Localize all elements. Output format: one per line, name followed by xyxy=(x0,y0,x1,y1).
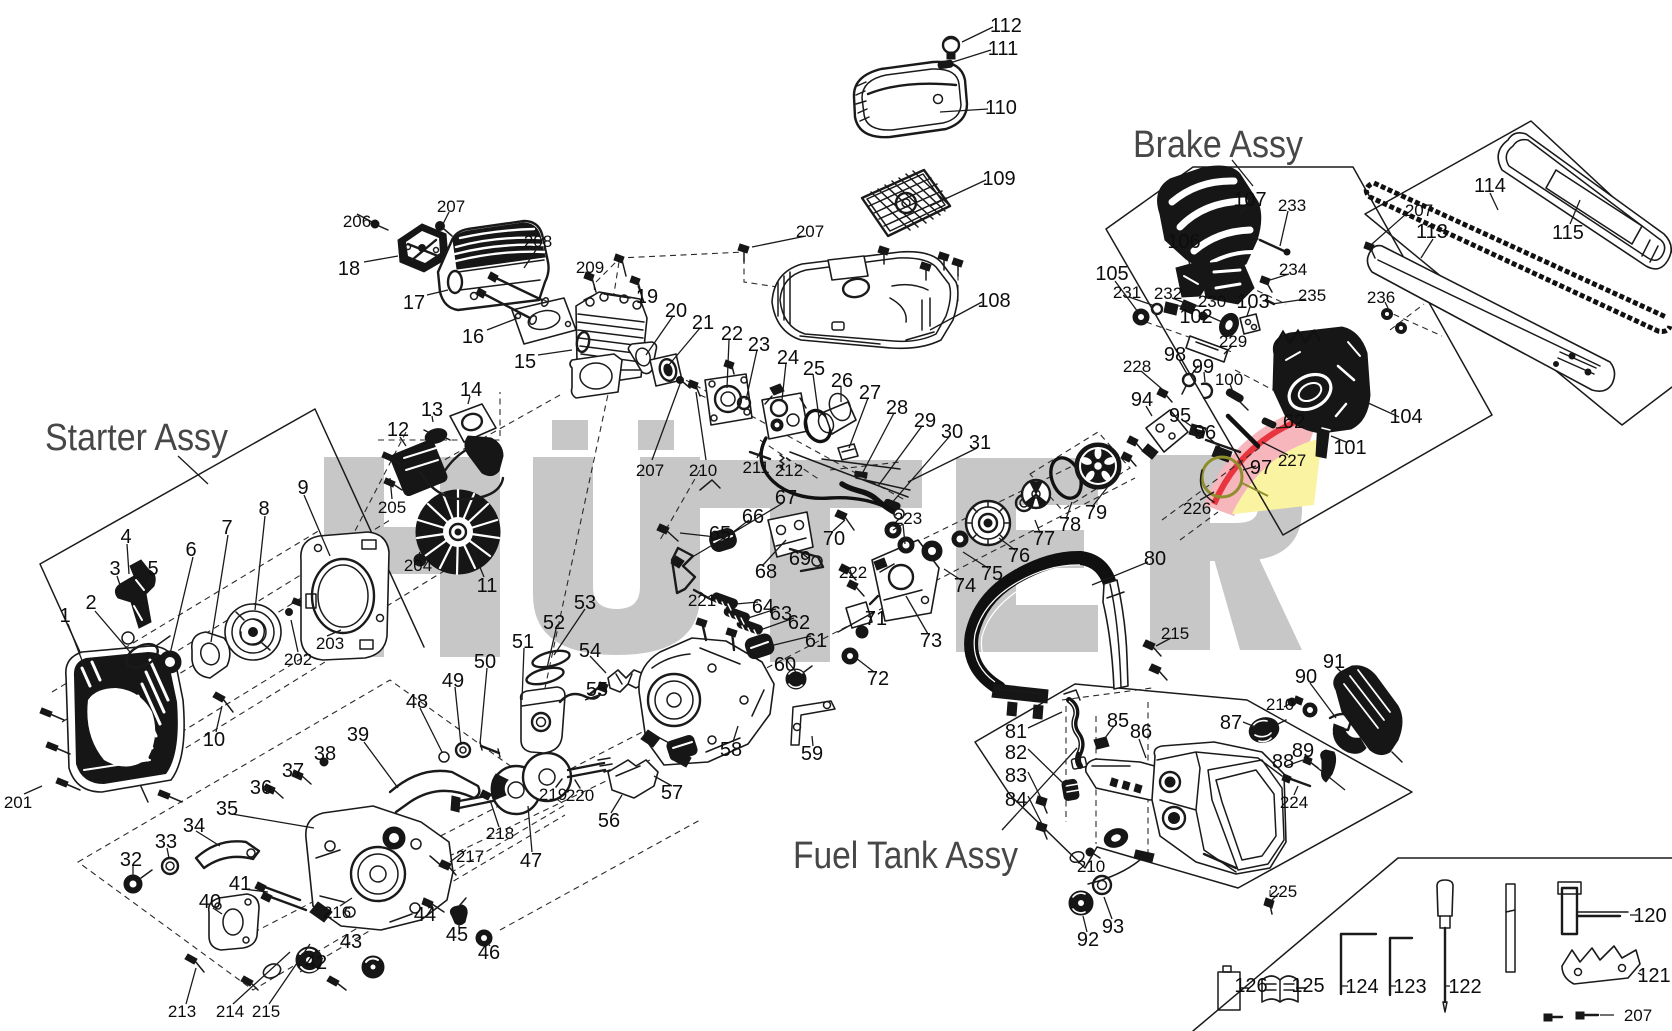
svg-text:235: 235 xyxy=(1298,286,1326,305)
svg-text:55: 55 xyxy=(586,679,608,701)
svg-text:61: 61 xyxy=(805,630,827,652)
svg-text:227: 227 xyxy=(1278,451,1306,470)
svg-text:62: 62 xyxy=(1283,411,1305,433)
svg-text:210: 210 xyxy=(689,461,717,480)
svg-text:214: 214 xyxy=(216,1002,244,1021)
svg-text:236: 236 xyxy=(1367,288,1395,307)
svg-text:69: 69 xyxy=(789,548,811,570)
svg-text:226: 226 xyxy=(1183,499,1211,518)
svg-text:21: 21 xyxy=(692,312,714,334)
svg-text:29: 29 xyxy=(914,410,936,432)
svg-text:49: 49 xyxy=(442,670,464,692)
svg-text:220: 220 xyxy=(566,786,594,805)
svg-text:84: 84 xyxy=(1005,789,1027,811)
svg-text:71: 71 xyxy=(865,608,887,630)
svg-text:122: 122 xyxy=(1448,976,1481,998)
svg-text:32: 32 xyxy=(120,849,142,871)
svg-text:35: 35 xyxy=(216,798,238,820)
svg-text:57: 57 xyxy=(661,782,683,804)
svg-text:81: 81 xyxy=(1005,721,1027,743)
svg-text:2: 2 xyxy=(85,592,96,614)
svg-text:27: 27 xyxy=(859,382,881,404)
svg-text:106: 106 xyxy=(1167,231,1200,253)
svg-text:58: 58 xyxy=(720,739,742,761)
svg-text:8: 8 xyxy=(258,498,269,520)
svg-text:110: 110 xyxy=(985,97,1017,119)
svg-text:9: 9 xyxy=(297,477,308,499)
svg-text:99: 99 xyxy=(1192,356,1214,378)
svg-text:75: 75 xyxy=(981,563,1003,585)
svg-text:51: 51 xyxy=(512,631,534,653)
svg-text:22: 22 xyxy=(721,323,743,345)
svg-text:66: 66 xyxy=(742,506,764,528)
svg-text:25: 25 xyxy=(803,358,825,380)
svg-text:4: 4 xyxy=(120,526,131,548)
svg-text:19: 19 xyxy=(636,286,658,308)
svg-text:207: 207 xyxy=(1405,201,1433,220)
svg-text:120: 120 xyxy=(1633,905,1666,927)
svg-text:215: 215 xyxy=(252,1002,280,1021)
svg-text:221: 221 xyxy=(688,591,716,610)
svg-text:14: 14 xyxy=(460,379,482,401)
svg-text:231: 231 xyxy=(1113,283,1141,302)
svg-text:12: 12 xyxy=(387,419,409,441)
svg-text:85: 85 xyxy=(1107,710,1129,732)
svg-text:30: 30 xyxy=(941,421,963,443)
svg-text:218: 218 xyxy=(486,824,514,843)
svg-text:207: 207 xyxy=(636,461,664,480)
svg-text:41: 41 xyxy=(229,873,251,895)
svg-text:43: 43 xyxy=(340,931,362,953)
svg-text:16: 16 xyxy=(462,326,484,348)
svg-text:33: 33 xyxy=(155,831,177,853)
svg-text:36: 36 xyxy=(250,777,272,799)
svg-text:44: 44 xyxy=(414,904,436,926)
svg-text:113: 113 xyxy=(1416,221,1448,243)
svg-text:207: 207 xyxy=(1624,1006,1652,1025)
svg-text:34: 34 xyxy=(183,815,205,837)
svg-text:7: 7 xyxy=(221,517,232,539)
svg-text:211: 211 xyxy=(742,458,769,477)
svg-text:93: 93 xyxy=(1102,916,1124,938)
svg-text:42: 42 xyxy=(305,952,327,974)
svg-text:72: 72 xyxy=(867,668,889,690)
svg-text:207: 207 xyxy=(796,222,824,241)
svg-text:82: 82 xyxy=(1005,742,1027,764)
svg-text:228: 228 xyxy=(1123,357,1151,376)
svg-text:95: 95 xyxy=(1169,405,1191,427)
svg-text:223: 223 xyxy=(894,509,922,528)
svg-text:92: 92 xyxy=(1077,929,1099,951)
svg-text:76: 76 xyxy=(1008,545,1030,567)
svg-text:229: 229 xyxy=(1219,332,1247,351)
svg-text:206: 206 xyxy=(343,212,371,231)
svg-text:202: 202 xyxy=(284,650,312,669)
svg-text:Brake Assy: Brake Assy xyxy=(1133,124,1303,166)
svg-text:48: 48 xyxy=(406,691,428,713)
svg-text:204: 204 xyxy=(404,556,432,575)
svg-text:60: 60 xyxy=(774,654,796,676)
svg-text:68: 68 xyxy=(755,561,777,583)
svg-text:90: 90 xyxy=(1295,666,1317,688)
svg-text:31: 31 xyxy=(969,432,991,454)
svg-text:13: 13 xyxy=(421,399,443,421)
svg-text:115: 115 xyxy=(1552,222,1584,244)
svg-text:28: 28 xyxy=(886,397,908,419)
svg-text:105: 105 xyxy=(1095,263,1128,285)
svg-text:88: 88 xyxy=(1272,751,1294,773)
svg-text:100: 100 xyxy=(1215,370,1243,389)
svg-text:213: 213 xyxy=(168,1002,196,1021)
svg-text:74: 74 xyxy=(954,575,976,597)
svg-text:111: 111 xyxy=(988,38,1018,60)
svg-text:45: 45 xyxy=(446,924,468,946)
svg-text:15: 15 xyxy=(514,351,536,373)
svg-text:201: 201 xyxy=(4,793,32,812)
svg-text:121: 121 xyxy=(1637,965,1670,987)
svg-text:123: 123 xyxy=(1393,976,1426,998)
svg-text:54: 54 xyxy=(579,640,601,662)
svg-text:3: 3 xyxy=(109,558,120,580)
svg-text:101: 101 xyxy=(1333,437,1366,459)
svg-text:10: 10 xyxy=(203,729,225,751)
svg-text:232: 232 xyxy=(1154,284,1182,303)
svg-text:40: 40 xyxy=(199,891,221,913)
svg-text:Starter Assy: Starter Assy xyxy=(45,417,228,459)
svg-text:87: 87 xyxy=(1220,712,1242,734)
svg-text:50: 50 xyxy=(474,651,496,673)
svg-text:225: 225 xyxy=(1269,882,1297,901)
svg-text:1: 1 xyxy=(59,605,70,627)
svg-text:126: 126 xyxy=(1234,975,1267,997)
svg-text:86: 86 xyxy=(1130,721,1152,743)
svg-text:78: 78 xyxy=(1059,514,1081,536)
svg-text:219: 219 xyxy=(539,785,567,804)
svg-text:203: 203 xyxy=(316,634,344,653)
svg-text:207: 207 xyxy=(437,197,465,216)
svg-text:39: 39 xyxy=(347,724,369,746)
svg-text:107: 107 xyxy=(1233,189,1266,211)
svg-text:209: 209 xyxy=(576,258,604,277)
svg-text:77: 77 xyxy=(1033,528,1055,550)
svg-text:234: 234 xyxy=(1279,260,1307,279)
svg-text:109: 109 xyxy=(982,168,1015,190)
svg-text:216: 216 xyxy=(323,903,351,922)
svg-text:65: 65 xyxy=(709,523,731,545)
svg-text:212: 212 xyxy=(775,461,803,480)
svg-text:11: 11 xyxy=(477,575,498,597)
svg-text:104: 104 xyxy=(1389,406,1422,428)
svg-text:38: 38 xyxy=(314,743,336,765)
svg-text:224: 224 xyxy=(1280,793,1308,812)
svg-text:230: 230 xyxy=(1198,292,1226,311)
svg-text:67: 67 xyxy=(775,487,797,509)
svg-text:124: 124 xyxy=(1345,976,1378,998)
svg-text:97: 97 xyxy=(1250,457,1272,479)
svg-text:56: 56 xyxy=(598,810,620,832)
svg-text:114: 114 xyxy=(1474,175,1506,197)
svg-text:96: 96 xyxy=(1194,422,1216,444)
svg-text:205: 205 xyxy=(378,498,406,517)
svg-text:17: 17 xyxy=(403,292,425,314)
svg-text:23: 23 xyxy=(748,334,770,356)
svg-text:215: 215 xyxy=(1161,624,1189,643)
svg-text:217: 217 xyxy=(456,847,484,866)
svg-text:125: 125 xyxy=(1291,975,1324,997)
svg-text:46: 46 xyxy=(478,942,500,964)
svg-text:53: 53 xyxy=(574,592,596,614)
svg-text:5: 5 xyxy=(147,558,158,580)
svg-text:20: 20 xyxy=(665,300,687,322)
svg-text:94: 94 xyxy=(1131,389,1153,411)
svg-text:18: 18 xyxy=(338,258,360,280)
svg-text:89: 89 xyxy=(1292,740,1314,762)
svg-text:112: 112 xyxy=(990,15,1022,37)
svg-text:210: 210 xyxy=(1077,857,1105,876)
svg-text:210: 210 xyxy=(1266,695,1294,714)
svg-text:47: 47 xyxy=(520,850,542,872)
svg-text:37: 37 xyxy=(282,760,304,782)
svg-text:26: 26 xyxy=(831,370,853,392)
svg-text:Fuel Tank Assy: Fuel Tank Assy xyxy=(793,835,1018,877)
svg-text:59: 59 xyxy=(801,743,823,765)
svg-text:233: 233 xyxy=(1278,196,1306,215)
svg-text:222: 222 xyxy=(839,563,867,582)
svg-text:103: 103 xyxy=(1236,291,1269,313)
svg-text:83: 83 xyxy=(1005,765,1027,787)
svg-text:208: 208 xyxy=(524,232,552,251)
svg-text:24: 24 xyxy=(777,347,799,369)
svg-text:98: 98 xyxy=(1164,344,1186,366)
svg-text:80: 80 xyxy=(1144,548,1166,570)
svg-text:70: 70 xyxy=(823,528,845,550)
svg-text:52: 52 xyxy=(543,612,565,634)
svg-text:79: 79 xyxy=(1085,502,1107,524)
svg-text:91: 91 xyxy=(1323,651,1345,673)
svg-text:73: 73 xyxy=(920,630,942,652)
svg-text:108: 108 xyxy=(977,290,1010,312)
svg-text:6: 6 xyxy=(185,539,196,561)
